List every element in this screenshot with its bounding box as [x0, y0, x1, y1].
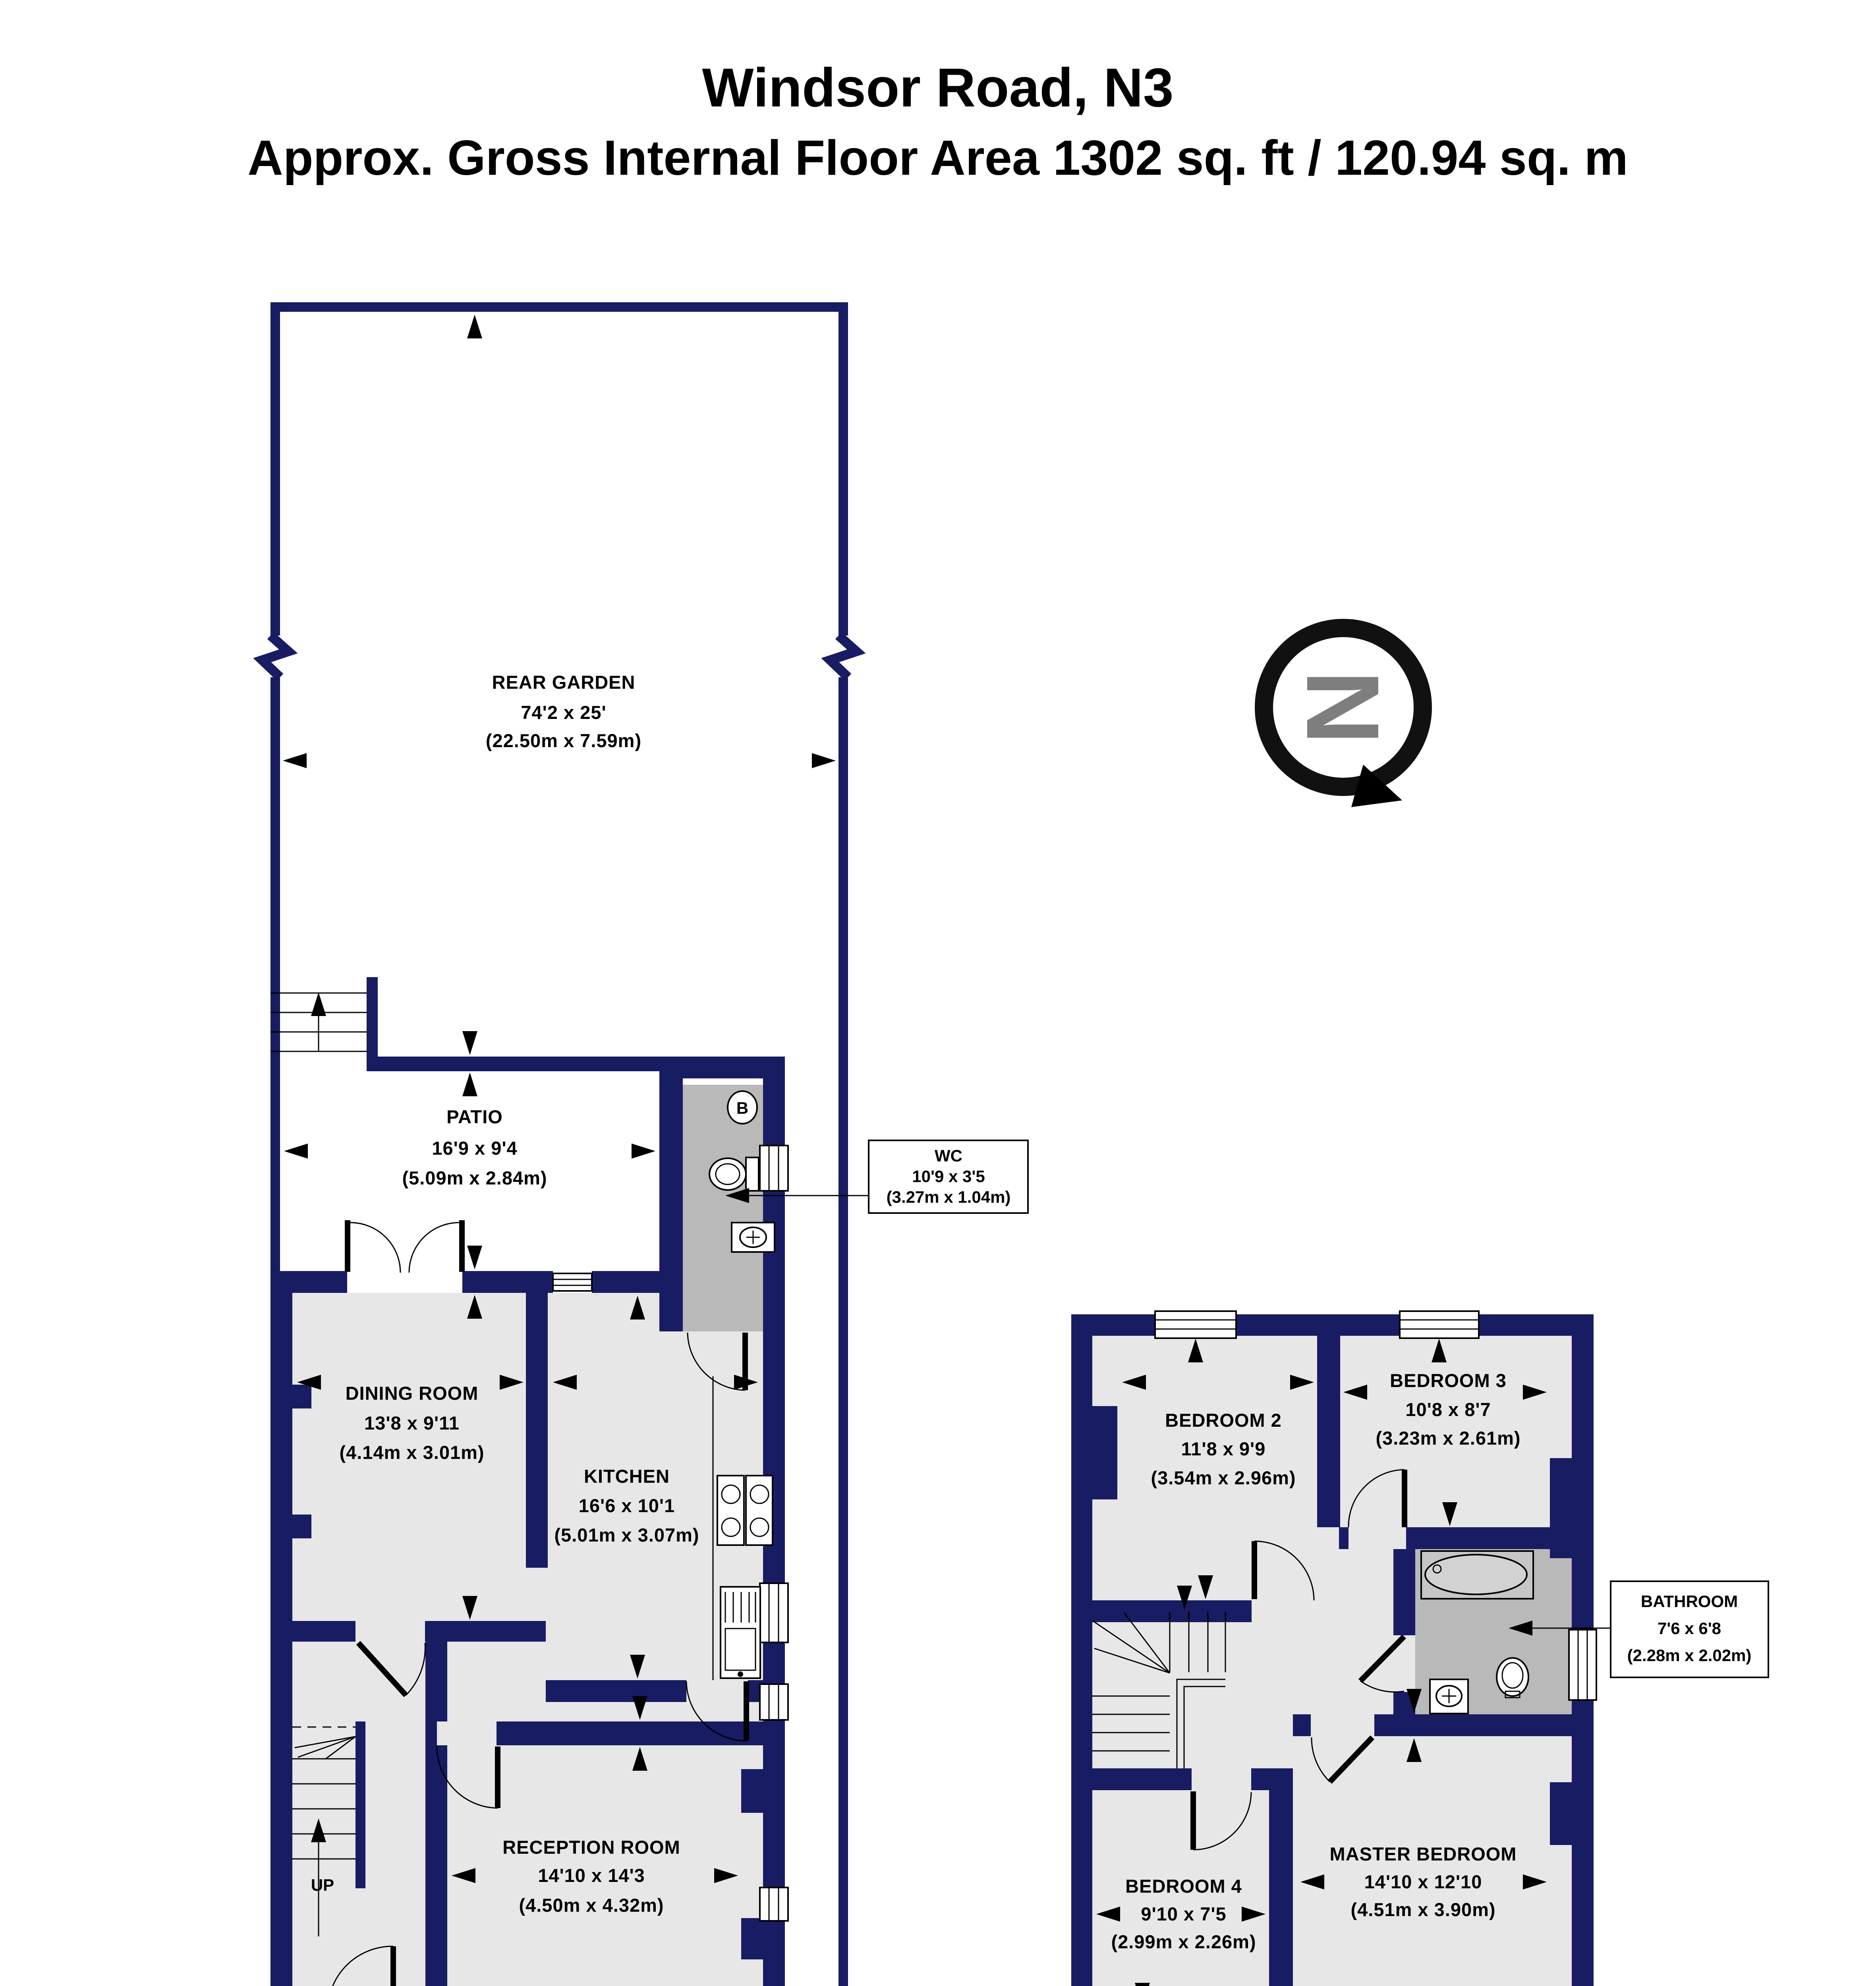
bathroom-dims: 7'6 x 6'8 [1658, 1619, 1721, 1638]
rear-garden-label: REAR GARDEN [492, 672, 636, 693]
wall-break-icon [825, 636, 861, 677]
sink-icon [1430, 1679, 1468, 1714]
window-icon [1400, 1311, 1479, 1338]
bedroom2-dims: 11'8 x 9'9 [1181, 1438, 1266, 1459]
patio-steps-icon [270, 992, 367, 1051]
boiler-letter: B [736, 1099, 748, 1117]
toilet-icon [1497, 1658, 1528, 1698]
bedroom4-dims-metric: (2.99m x 2.26m) [1111, 1931, 1256, 1952]
dining-room-label: DINING ROOM [346, 1383, 479, 1404]
stairs-up-label: UP [311, 1876, 334, 1894]
master-bedroom-dims: 14'10 x 12'10 [1364, 1871, 1482, 1892]
window-icon [760, 1146, 788, 1191]
boiler-icon: B [728, 1091, 757, 1124]
bedroom2-label: BEDROOM 2 [1165, 1410, 1282, 1431]
window-icon [760, 1684, 788, 1720]
wc-label: WC [935, 1146, 962, 1165]
bedroom4-dims: 9'10 x 7'5 [1141, 1903, 1226, 1924]
reception-room-label: RECEPTION ROOM [502, 1837, 680, 1858]
wc-floor [683, 1085, 767, 1331]
bathroom-dims-metric: (2.28m x 2.02m) [1627, 1646, 1752, 1665]
kitchen-label: KITCHEN [584, 1466, 670, 1487]
window-icon [553, 1273, 592, 1291]
bathroom-label: BATHROOM [1641, 1592, 1738, 1611]
floorplan-canvas: Windsor Road, N3 Approx. Gross Internal … [0, 0, 1876, 1986]
title-address: Windsor Road, N3 [702, 57, 1173, 118]
dining-room-dims-metric: (4.14m x 3.01m) [339, 1442, 484, 1463]
page-title: Windsor Road, N3 Approx. Gross Internal … [247, 57, 1628, 185]
floorplan-page: Windsor Road, N3 Approx. Gross Internal … [0, 0, 1876, 1986]
rear-garden-dims: 74'2 x 25' [521, 702, 606, 723]
bedroom3-dims-metric: (3.23m x 2.61m) [1376, 1428, 1521, 1449]
reception-room-dims-metric: (4.50m x 4.32m) [519, 1895, 664, 1916]
window-icon [760, 1887, 788, 1921]
first-floor-plan: BEDROOM 2 11'8 x 9'9 (3.54m x 2.96m) BED… [1071, 1311, 1768, 1986]
master-bedroom-label: MASTER BEDROOM [1330, 1843, 1517, 1864]
toilet-icon [709, 1157, 759, 1191]
bedroom4-label: BEDROOM 4 [1125, 1876, 1242, 1897]
window-icon [1569, 1630, 1596, 1700]
patio-dims: 16'9 x 9'4 [432, 1138, 517, 1159]
wall-break-icon [257, 636, 293, 677]
patio-double-doors [345, 1220, 465, 1273]
bedroom2-dims-metric: (3.54m x 2.96m) [1151, 1467, 1296, 1488]
north-compass-icon: N [1264, 628, 1423, 807]
rear-garden-dims-metric: (22.50m x 7.59m) [486, 730, 641, 751]
patio-dims-metric: (5.09m x 2.84m) [402, 1167, 547, 1188]
wc-dims-metric: (3.27m x 1.04m) [887, 1188, 1011, 1206]
dining-room-dims: 13'8 x 9'11 [364, 1412, 460, 1433]
sink-icon [732, 1223, 775, 1252]
reception-room-dims: 14'10 x 14'3 [538, 1865, 645, 1886]
window-icon [760, 1583, 788, 1642]
ground-floor-plan: REAR GARDEN 74'2 x 25' (22.50m x 7.59m) … [257, 302, 1028, 1986]
wc-dims: 10'9 x 3'5 [912, 1167, 985, 1186]
bath-icon [1421, 1551, 1533, 1599]
master-bedroom-dims-metric: (4.51m x 3.90m) [1350, 1899, 1495, 1920]
title-area: Approx. Gross Internal Floor Area 1302 s… [247, 131, 1628, 185]
kitchen-dims: 16'6 x 10'1 [579, 1495, 675, 1516]
bedroom3-dims: 10'8 x 8'7 [1405, 1399, 1491, 1420]
kitchen-dims-metric: (5.01m x 3.07m) [554, 1524, 699, 1546]
patio-label: PATIO [446, 1106, 503, 1127]
kitchen-sink-icon [721, 1587, 760, 1678]
window-icon [1155, 1311, 1236, 1338]
compass-north-letter: N [1285, 670, 1400, 745]
bedroom3-label: BEDROOM 3 [1390, 1370, 1507, 1391]
